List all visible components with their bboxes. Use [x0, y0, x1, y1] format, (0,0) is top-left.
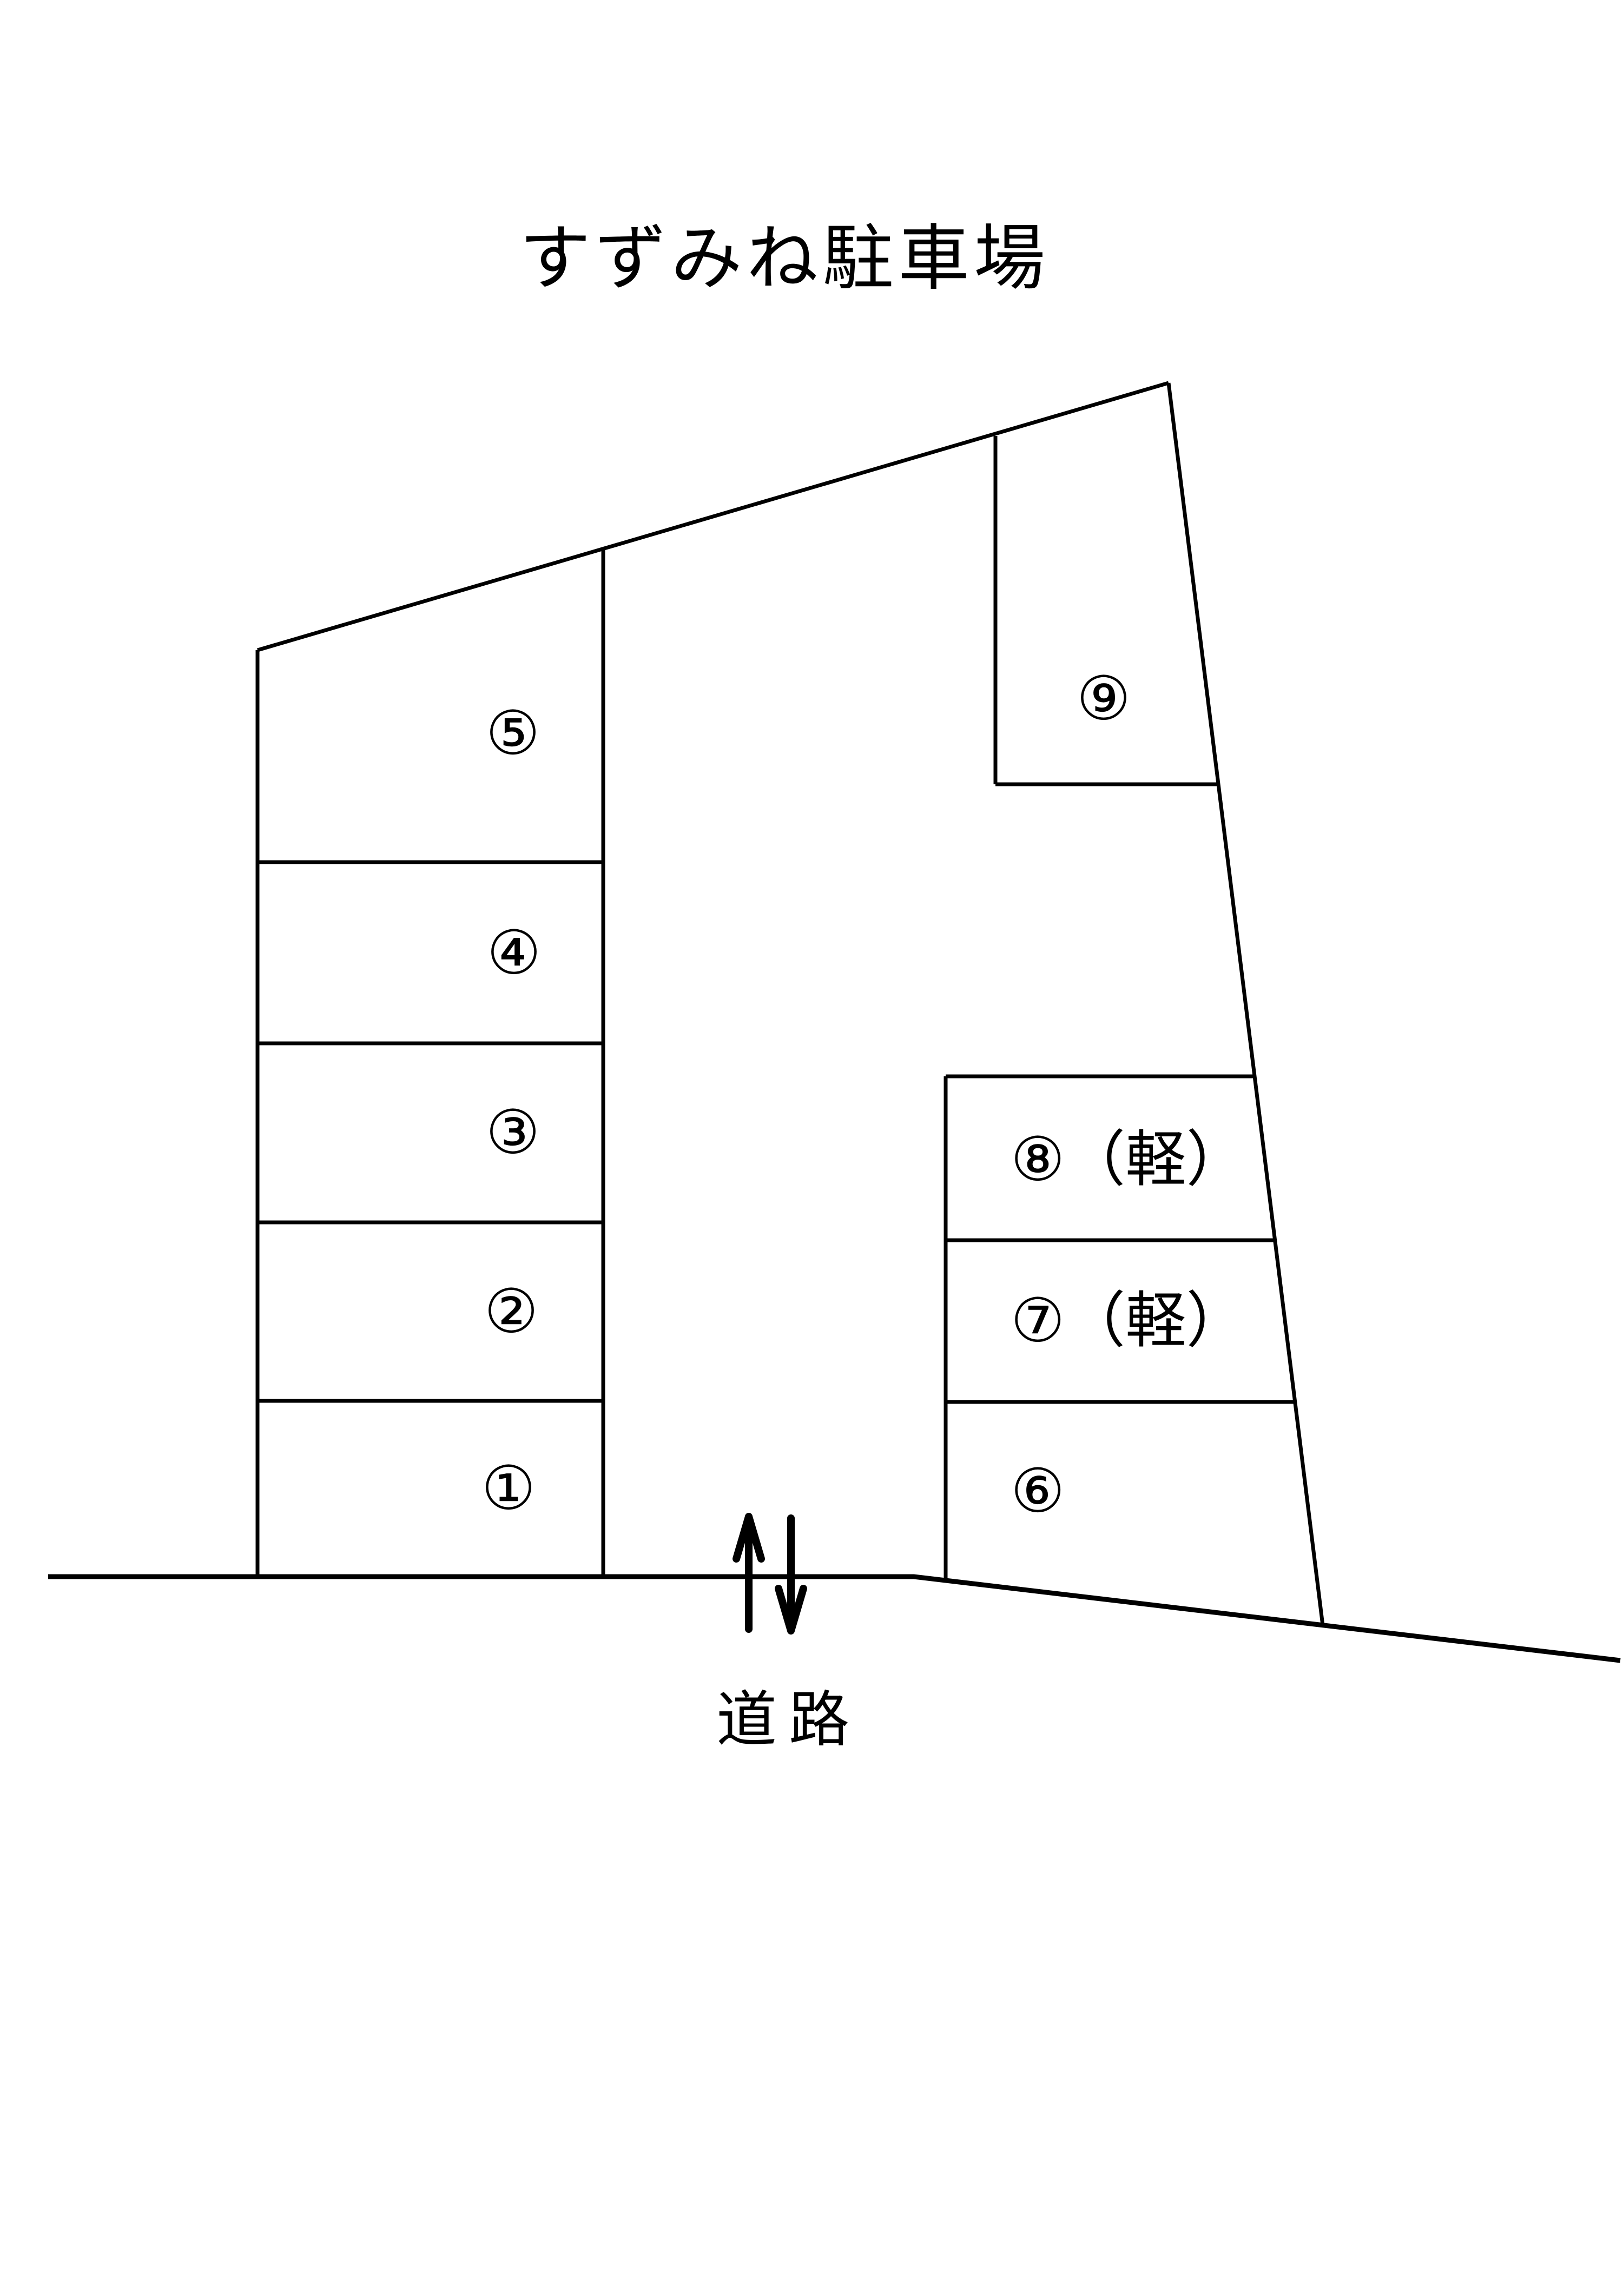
space-5-label: ⑤	[486, 698, 540, 769]
road-label: 道路	[716, 1685, 861, 1755]
space-2-label: ②	[484, 1276, 538, 1347]
parking-lot-diagram: すずみね駐車場 ① ② ③ ④ ⑤ ⑥ ⑦（軽）	[0, 0, 1623, 2296]
space-3-label: ③	[486, 1097, 540, 1168]
space-7-label: ⑦（軽）	[1011, 1286, 1246, 1356]
page-title: すずみね駐車場	[519, 217, 1050, 300]
canvas-background	[0, 0, 1623, 2296]
space-1-label: ①	[481, 1453, 536, 1524]
space-4-label: ④	[487, 918, 541, 988]
space-6-label: ⑥	[1011, 1456, 1065, 1526]
space-9-label: ⑨	[1077, 664, 1131, 734]
space-8-label: ⑧（軽）	[1011, 1124, 1246, 1195]
